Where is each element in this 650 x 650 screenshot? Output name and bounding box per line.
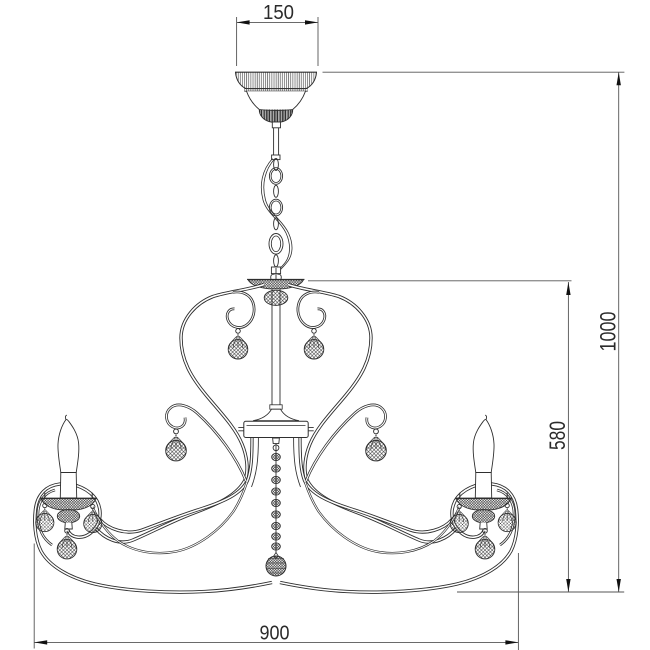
svg-text:150: 150 xyxy=(263,2,294,24)
svg-text:900: 900 xyxy=(260,623,290,645)
svg-text:1000: 1000 xyxy=(596,312,621,352)
svg-text:580: 580 xyxy=(545,421,570,450)
